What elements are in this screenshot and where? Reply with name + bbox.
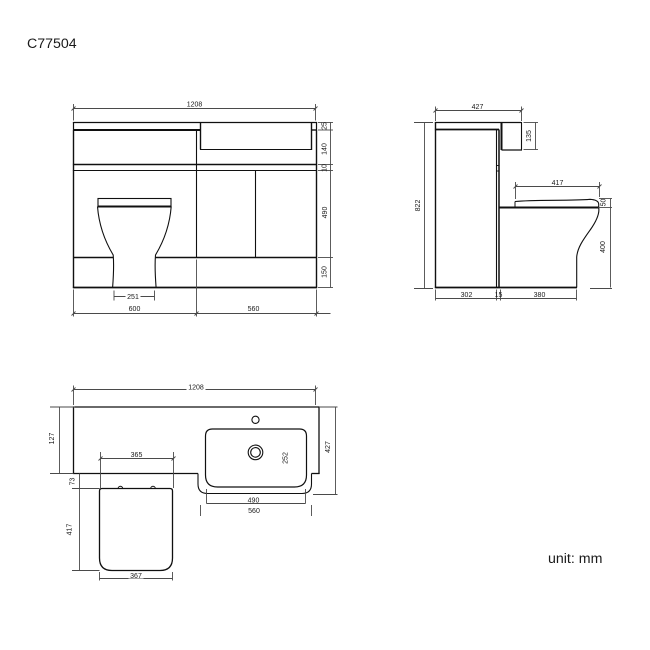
svg-text:822: 822 xyxy=(415,200,422,212)
svg-text:365: 365 xyxy=(131,452,143,459)
svg-text:150: 150 xyxy=(322,266,329,278)
svg-text:unit: mm: unit: mm xyxy=(548,551,602,567)
svg-text:600: 600 xyxy=(129,306,141,313)
svg-text:127: 127 xyxy=(49,433,56,445)
svg-text:251: 251 xyxy=(127,294,139,301)
svg-text:490: 490 xyxy=(248,498,260,505)
svg-text:400: 400 xyxy=(600,241,607,253)
svg-text:73: 73 xyxy=(70,478,77,486)
svg-text:490: 490 xyxy=(322,207,329,219)
svg-text:417: 417 xyxy=(67,524,74,536)
svg-text:25: 25 xyxy=(322,122,329,130)
svg-text:252: 252 xyxy=(283,452,290,464)
svg-text:50: 50 xyxy=(601,199,608,207)
svg-text:1208: 1208 xyxy=(187,102,203,109)
svg-text:140: 140 xyxy=(322,143,329,155)
svg-text:427: 427 xyxy=(472,104,484,111)
svg-text:427: 427 xyxy=(325,441,332,453)
svg-text:560: 560 xyxy=(248,306,260,313)
svg-text:1208: 1208 xyxy=(188,385,204,392)
svg-text:15: 15 xyxy=(495,292,503,299)
svg-text:417: 417 xyxy=(552,180,564,187)
svg-text:380: 380 xyxy=(534,292,546,299)
svg-text:302: 302 xyxy=(461,292,473,299)
svg-text:367: 367 xyxy=(130,573,142,580)
svg-text:135: 135 xyxy=(526,130,533,142)
svg-text:10: 10 xyxy=(322,164,329,172)
svg-text:C77504: C77504 xyxy=(27,36,77,52)
svg-text:560: 560 xyxy=(248,508,260,515)
